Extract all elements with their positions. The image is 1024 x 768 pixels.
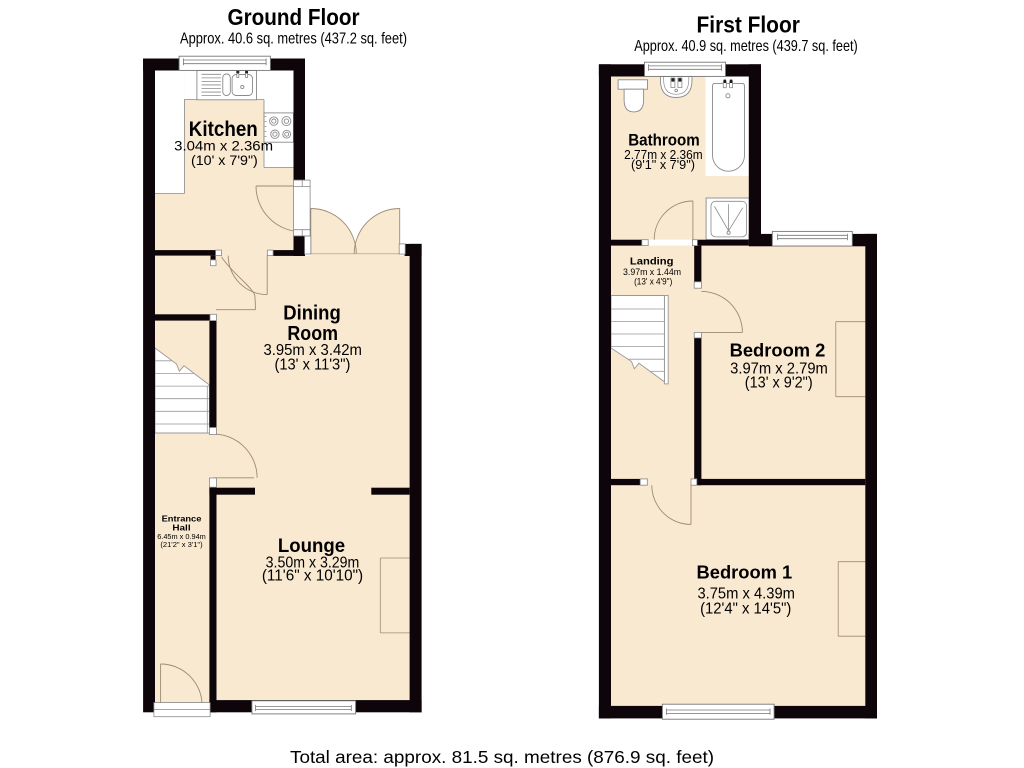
svg-text:(21'2" x 3'1"): (21'2" x 3'1") — [160, 540, 202, 549]
svg-text:Approx. 40.9 sq. metres (439.7: Approx. 40.9 sq. metres (439.7 sq. feet) — [634, 38, 858, 55]
svg-text:(10' x 7'9"): (10' x 7'9") — [191, 153, 258, 168]
svg-text:(13' x 9'2"): (13' x 9'2") — [745, 375, 813, 392]
svg-text:Bedroom 1: Bedroom 1 — [697, 563, 793, 584]
svg-text:Approx. 40.6 sq. metres (437.2: Approx. 40.6 sq. metres (437.2 sq. feet) — [180, 31, 407, 48]
svg-text:(12'4" x 14'5"): (12'4" x 14'5") — [700, 601, 791, 618]
svg-text:(9'1" x 7'9"): (9'1" x 7'9") — [631, 157, 695, 172]
svg-text:Ground Floor: Ground Floor — [228, 4, 360, 30]
svg-text:Entrance: Entrance — [162, 515, 202, 524]
svg-text:First Floor: First Floor — [697, 11, 800, 37]
svg-text:(13' x 11'3"): (13' x 11'3") — [274, 357, 350, 374]
svg-text:Bedroom 2: Bedroom 2 — [730, 339, 826, 360]
svg-text:Dining: Dining — [283, 303, 341, 325]
svg-text:Hall: Hall — [172, 524, 190, 533]
svg-text:(13' x 4'9"): (13' x 4'9") — [634, 276, 672, 286]
svg-text:Total area: approx. 81.5 sq. m: Total area: approx. 81.5 sq. metres (876… — [290, 747, 714, 767]
svg-text:(11'6" x 10'10"): (11'6" x 10'10") — [262, 568, 363, 585]
svg-text:3.04m x 2.36m: 3.04m x 2.36m — [174, 138, 273, 153]
svg-text:Landing: Landing — [630, 257, 674, 268]
